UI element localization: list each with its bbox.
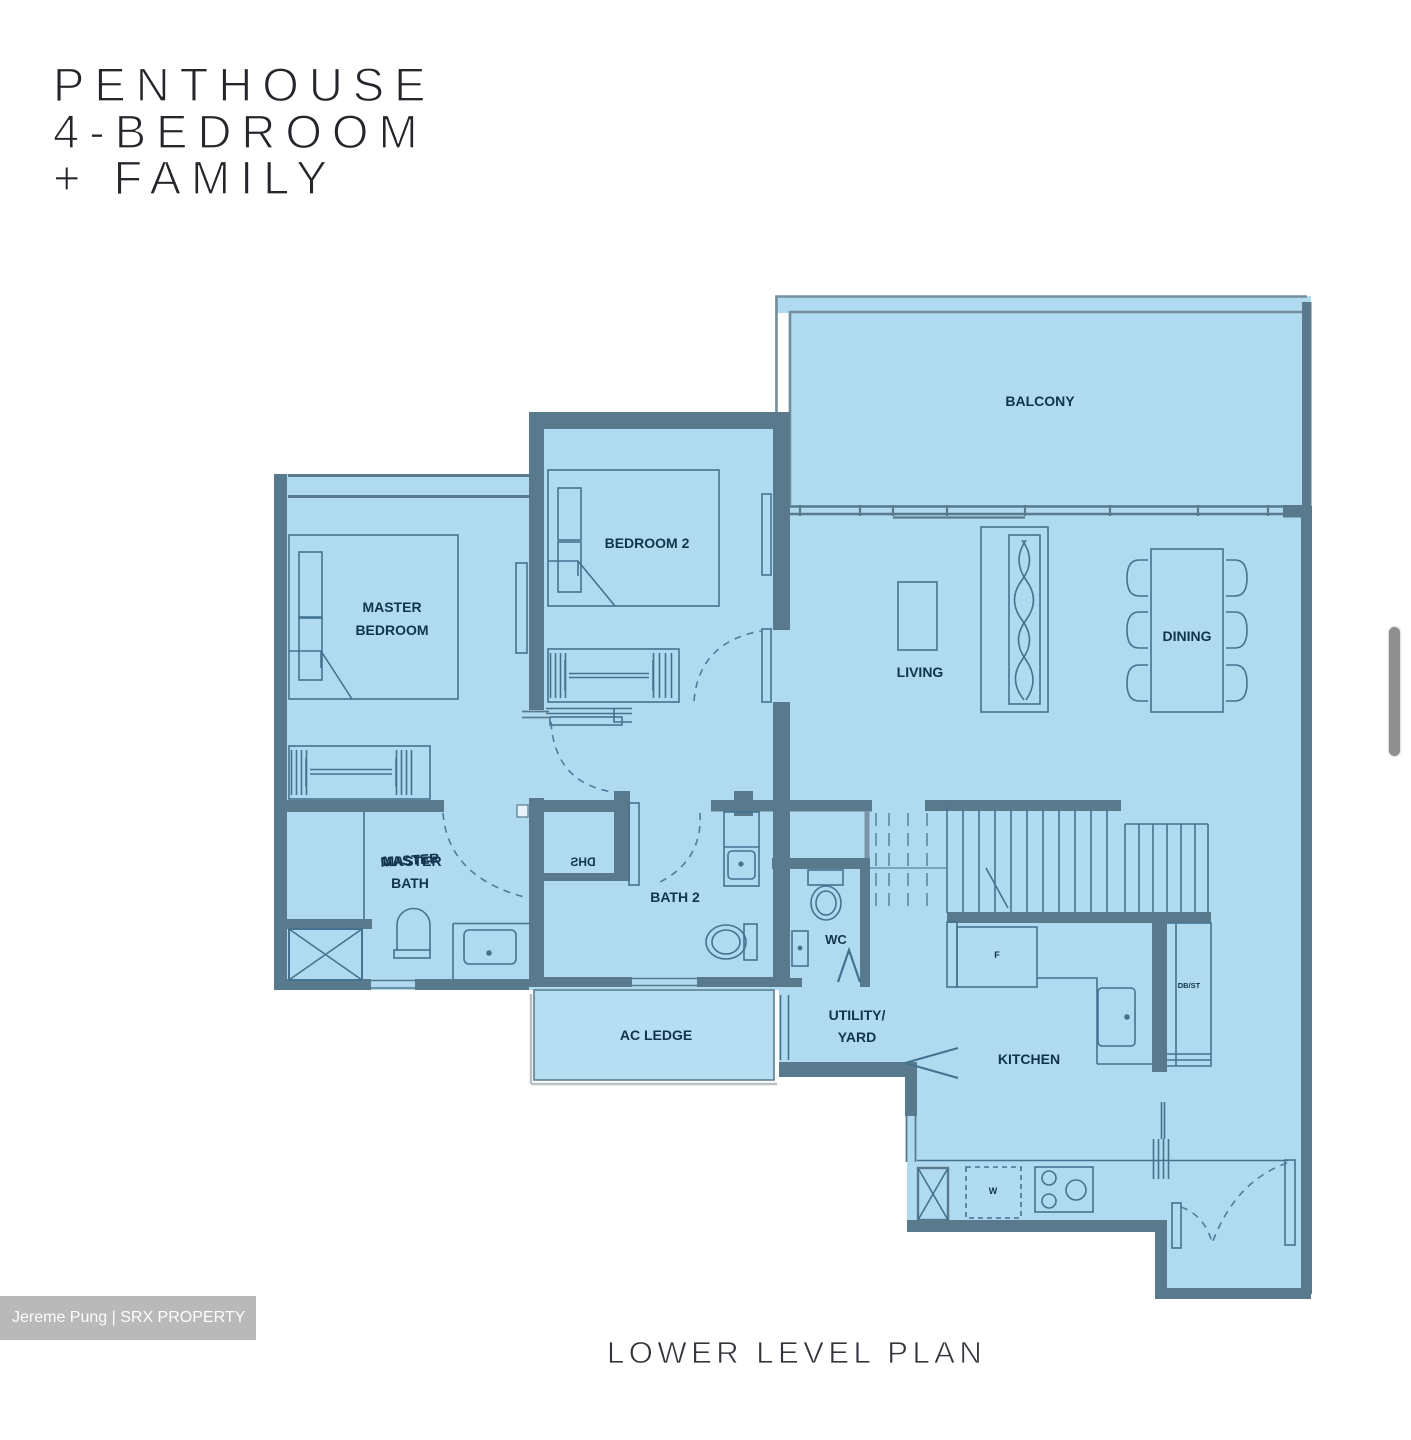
svg-text:LIVING: LIVING xyxy=(897,664,944,680)
svg-text:YARD: YARD xyxy=(838,1029,876,1045)
svg-text:BEDROOM: BEDROOM xyxy=(355,622,428,638)
svg-text:UTILITY/: UTILITY/ xyxy=(829,1007,886,1023)
svg-text:BATH 2: BATH 2 xyxy=(650,889,700,905)
svg-text:KITCHEN: KITCHEN xyxy=(998,1051,1060,1067)
svg-text:BATH: BATH xyxy=(391,875,429,891)
svg-text:BEDROOM 2: BEDROOM 2 xyxy=(605,535,690,551)
svg-text:WC: WC xyxy=(825,932,847,947)
svg-text:AC LEDGE: AC LEDGE xyxy=(620,1027,692,1043)
svg-text:DHS: DHS xyxy=(570,855,595,869)
svg-text:DB/ST: DB/ST xyxy=(1178,981,1201,990)
svg-text:BALCONY: BALCONY xyxy=(1005,393,1075,409)
svg-text:W: W xyxy=(989,1186,998,1196)
svg-text:DINING: DINING xyxy=(1163,628,1212,644)
svg-text:F: F xyxy=(994,950,1000,960)
svg-text:MASTER: MASTER xyxy=(362,599,421,615)
